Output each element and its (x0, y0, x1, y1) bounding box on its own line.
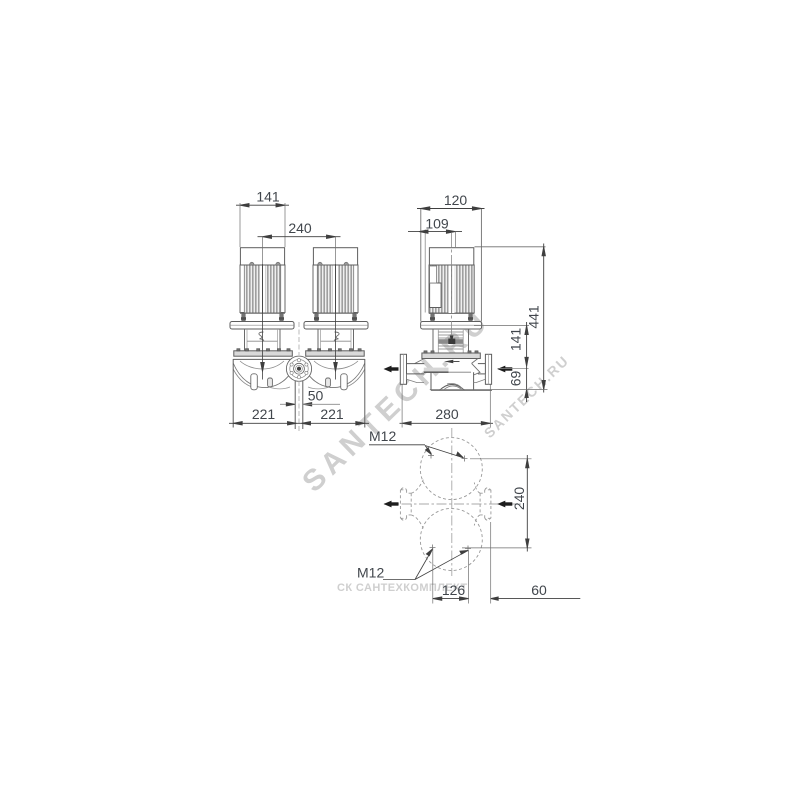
svg-text:126: 126 (442, 582, 466, 598)
svg-text:221: 221 (252, 406, 276, 422)
svg-text:240: 240 (511, 487, 527, 511)
svg-text:M12: M12 (369, 428, 396, 444)
svg-text:141: 141 (508, 328, 524, 352)
svg-text:240: 240 (288, 220, 312, 236)
svg-text:69: 69 (508, 371, 524, 387)
svg-text:109: 109 (425, 216, 449, 232)
svg-text:280: 280 (435, 406, 459, 422)
svg-text:50: 50 (308, 388, 324, 404)
svg-text:M12: M12 (357, 565, 384, 581)
svg-text:60: 60 (531, 582, 547, 598)
svg-text:221: 221 (320, 406, 344, 422)
svg-text:141: 141 (256, 189, 280, 205)
svg-text:120: 120 (444, 192, 468, 208)
